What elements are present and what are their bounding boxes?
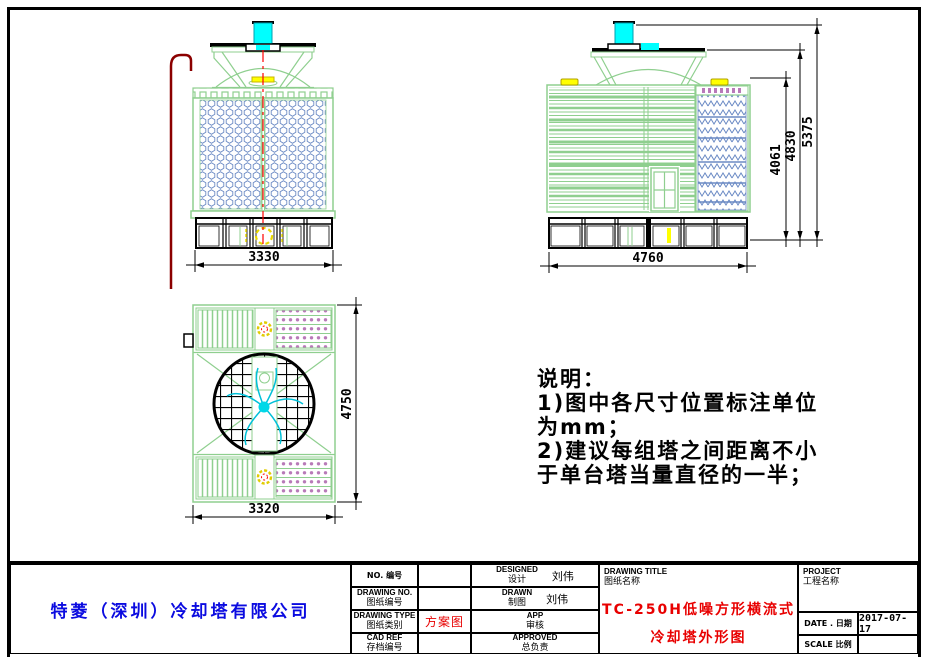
drawing-type-value-cell: 方案图 [418,610,471,633]
eliminator-section-bottom [276,459,331,497]
fan-motor-side [615,23,633,44]
project-cell: PROJECT 工程名称 [798,564,918,612]
title-block: 特菱（深圳）冷却塔有限公司 NO. 编号 DRAWING NO. 图纸编号 DR… [10,561,918,657]
dim-top-depth: 4750 [337,297,362,510]
drawing-title-line1: TC-250H低噪方形横流式 [600,599,797,619]
fill-panel-right [265,100,326,209]
inlet-pipe [171,55,191,289]
dim-text-height-total: 5375 [801,116,816,147]
drawing-title-line2: 冷却塔外形图 [600,627,797,647]
dim-front-width: 3330 [186,250,342,272]
water-basin-front [196,218,332,248]
dim-text-side-width: 4760 [632,251,663,266]
approved-cell: APPROVED 总负责 [471,633,599,654]
company-name: 特菱（深圳）冷却塔有限公司 [51,597,311,622]
eliminator-section-top [276,310,331,348]
drawing-sheet: 3330 [0,0,928,664]
fill-panel-side [698,95,746,210]
notes-line: 于单台塔当量直径的一半； [537,463,877,487]
fan-motor [254,23,272,44]
dim-text-top-depth: 4750 [340,388,355,419]
access-door [649,166,680,212]
dim-text-height-casing: 4830 [784,130,799,161]
side-view: 4760 4061 4830 5375 [540,18,823,273]
no-label-cell: NO. 编号 [351,564,418,587]
overflow-fitting [667,228,671,243]
inlet-stub [184,334,193,347]
dim-text-top-width: 3320 [248,502,279,517]
top-view: 4750 3320 [184,297,362,524]
dim-text-height-inner: 4061 [769,144,784,175]
drawing-no-value-cell [418,587,471,610]
drawing-no-label-cell: DRAWING NO. 图纸编号 [351,587,418,610]
no-value-cell [418,564,471,587]
fill-panel-left [200,100,261,209]
motor-junction-box [641,43,659,50]
notes-line: 1)图中各尺寸位置标注单位 [537,391,877,415]
designed-value: 刘伟 [552,568,574,584]
piping-cap-right [711,79,728,85]
drawing-title-cell: DRAWING TITLE 图纸名称 TC-250H低噪方形横流式 冷却塔外形图 [599,564,798,654]
dim-top-width: 3320 [185,502,343,524]
drawn-value: 刘伟 [546,591,568,607]
date-label-cell: DATE . 日期 [798,612,858,635]
louver-section-top [198,310,253,348]
notes-line: 为mm； [537,415,877,439]
piping-cap-left [561,79,578,85]
date-value-cell: 2017-07-17 [858,612,918,635]
notes-line: 2)建议每组塔之间距离不小 [537,439,877,463]
water-basin-side [549,218,747,248]
scale-label-cell: SCALE 比例 [798,635,858,654]
drawing-type-label-cell: DRAWING TYPE 图纸类别 [351,610,418,633]
front-view: 3330 [171,21,342,289]
drawing-type-value: 方案图 [425,613,464,630]
dim-side-width: 4760 [540,251,756,273]
date-value: 2017-07-17 [859,613,917,635]
drawn-cell: DRAWN 制图 刘伟 [471,587,599,610]
app-cell: APP 审核 [471,610,599,633]
designed-cell: DESIGNED 设计 刘伟 [471,564,599,587]
scale-value-cell [858,635,918,654]
notes-title: 说明： [537,367,877,391]
dim-text-front-width: 3330 [248,250,279,265]
louver-section-bottom [198,459,253,497]
fan-hub-plan [259,402,270,413]
cad-ref-label-cell: CAD REF 存档编号 [351,633,418,654]
company-cell: 特菱（深圳）冷却塔有限公司 [10,564,351,654]
cad-ref-value-cell [418,633,471,654]
notes-block: 说明： 1)图中各尺寸位置标注单位 为mm； 2)建议每组塔之间距离不小 于单台… [537,367,877,487]
